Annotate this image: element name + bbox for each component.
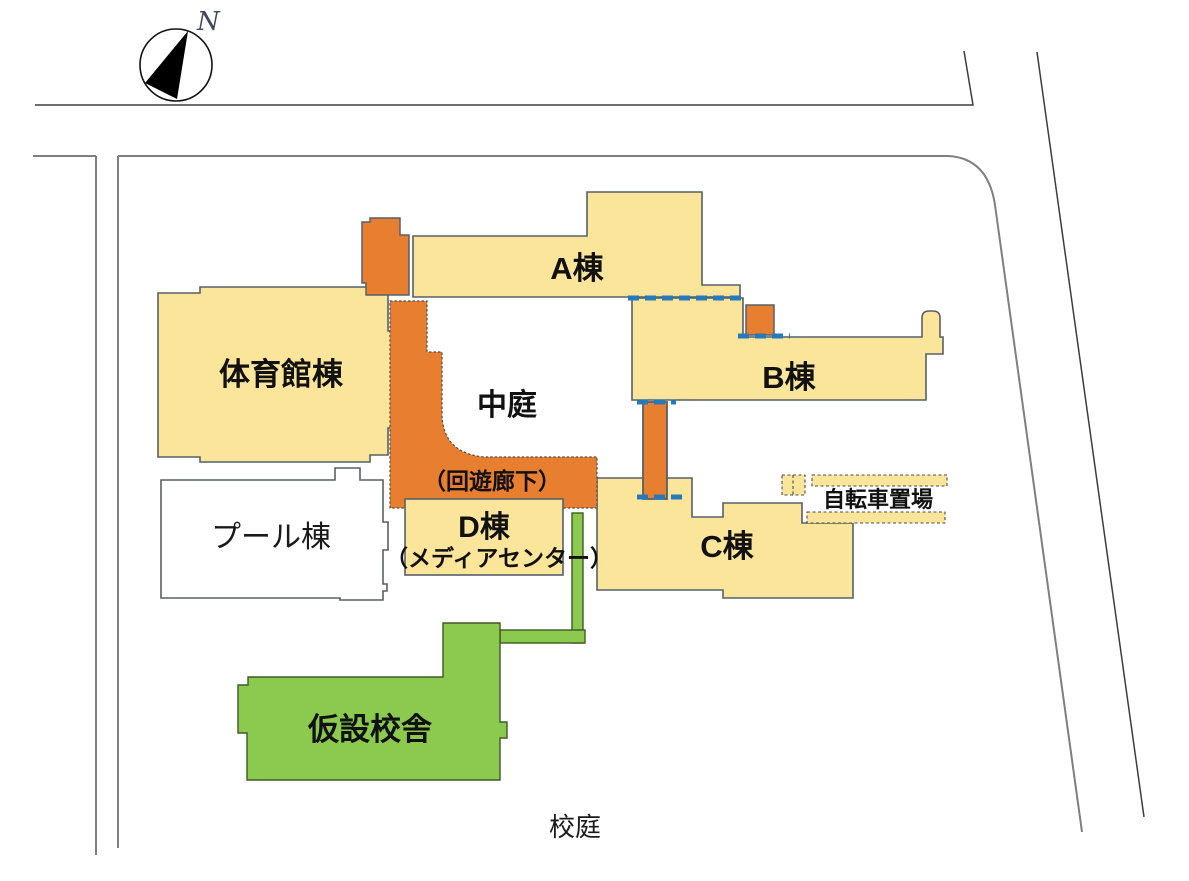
courtyard-label: 中庭: [477, 388, 537, 422]
schoolyard-label: 校庭: [549, 812, 601, 842]
pool-label: プール棟: [211, 521, 331, 554]
orange-annex-b-shape: [746, 305, 774, 335]
bicycle-parking-label: 自転車置場: [823, 487, 933, 512]
building-c-label: C棟: [700, 529, 754, 564]
orange-annex-north-shape: [362, 218, 409, 295]
building-d-sublabel: （メディアセンター）: [385, 545, 613, 571]
campus-map-svg: N 体育館棟 A棟 B棟 C棟 D棟: [0, 0, 1189, 881]
building-b-label: B棟: [762, 360, 816, 395]
temporary-building-shape: [238, 623, 507, 780]
bicycle-rack-south-strip: [807, 512, 945, 523]
building-d-label: D棟: [458, 511, 511, 544]
building-a-label: A棟: [550, 251, 604, 286]
temporary-building-label: 仮設校舎: [307, 712, 432, 747]
orange-connector-bc-shape: [643, 402, 667, 499]
gym-label: 体育館棟: [219, 357, 344, 392]
compass-north-label: N: [196, 7, 221, 37]
right-road-line: [1037, 52, 1144, 817]
campus-map-page: N 体育館棟 A棟 B棟 C棟 D棟: [0, 0, 1189, 881]
compass: N: [140, 7, 221, 101]
green-connector-vertical: [572, 513, 583, 643]
green-connector-horizontal: [500, 630, 585, 643]
bicycle-rack-north-strip: [812, 475, 947, 486]
corridor-label: （回遊廊下）: [423, 468, 561, 494]
